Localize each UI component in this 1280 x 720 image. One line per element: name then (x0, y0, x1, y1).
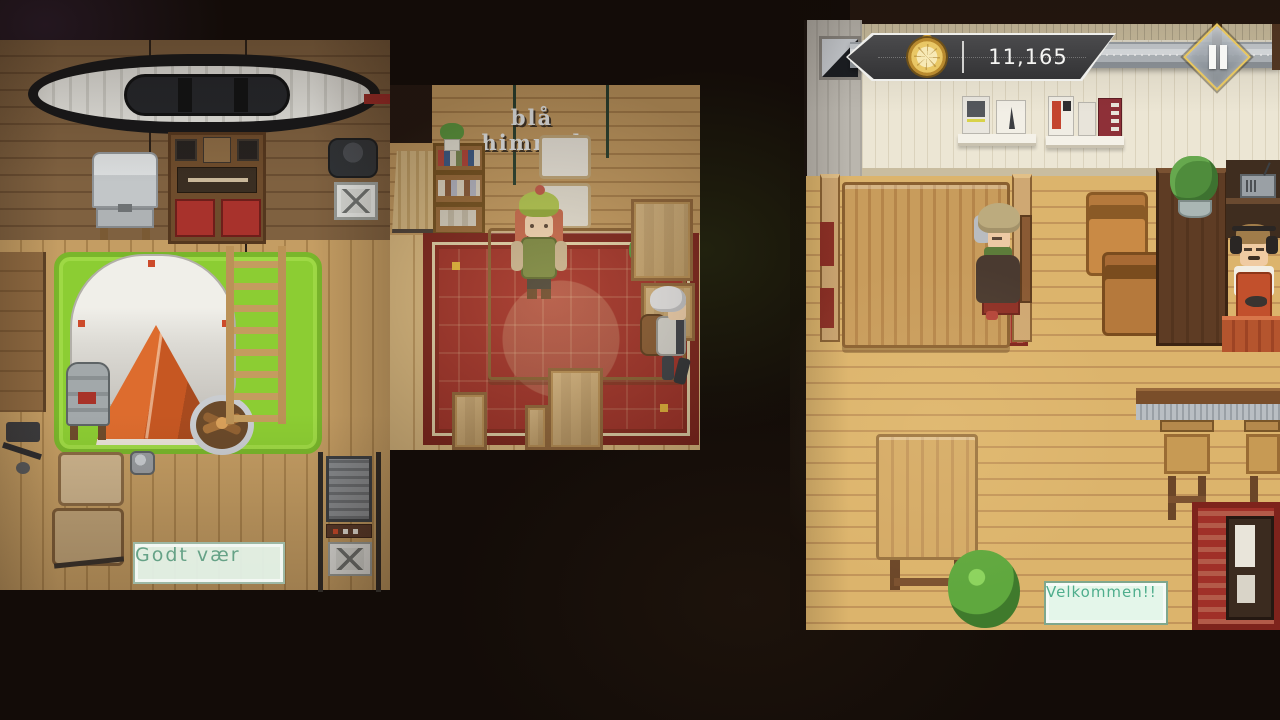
tank-leg (70, 426, 78, 440)
grill-controls (326, 524, 372, 538)
camp-kettle (130, 451, 155, 475)
partition-plant-pot (1178, 200, 1212, 218)
den-dark-corner (390, 85, 432, 143)
carpet-dot (452, 262, 460, 270)
den-room: blå himmel (390, 85, 700, 450)
radio-speaker (1246, 180, 1258, 192)
poster-art (1052, 101, 1061, 129)
stool-back (1160, 420, 1214, 432)
girl-arm (511, 241, 523, 271)
player-character (640, 288, 695, 398)
water-tank (66, 362, 110, 440)
menu-papers (1237, 575, 1255, 603)
magazine-art (1007, 107, 1017, 129)
wall-shelf (1046, 96, 1124, 148)
chair-back (1020, 215, 1032, 303)
picture-frame (1145, 136, 1167, 166)
grill-rack (326, 456, 372, 522)
wood-chair (1102, 252, 1164, 336)
counter-shelf (1226, 198, 1280, 204)
grandma-eye (992, 237, 1002, 240)
cart-post (318, 452, 323, 592)
wooden-crate (640, 405, 690, 450)
barista-mustache (1248, 256, 1260, 260)
watch-face (908, 38, 946, 76)
welcome-speech-text: Velkommen!! (1046, 583, 1157, 601)
knob (343, 529, 348, 534)
camp-chair (58, 452, 124, 506)
bush (948, 550, 1020, 628)
barista-brow (1256, 248, 1264, 251)
girl-boot (527, 289, 537, 299)
camp-chairs (52, 452, 130, 572)
pause-button[interactable] (1186, 26, 1248, 88)
bar-counter-metal (1136, 404, 1280, 420)
cabin-building (0, 40, 390, 590)
radio-unit (203, 137, 231, 163)
picture-frame (893, 131, 919, 167)
jacket-panel (676, 320, 684, 354)
side-rug (1192, 502, 1280, 630)
bar-counter-edge (1136, 388, 1280, 404)
menu-papers (1235, 525, 1255, 567)
grandma-slipper (986, 311, 998, 320)
girl-face (525, 215, 553, 237)
hanging-lantern (262, 135, 288, 175)
hanging-lantern (236, 328, 264, 364)
money-value: 11,165 (972, 35, 1084, 79)
banner-panel: 11,165 (848, 35, 1114, 79)
headphones-icon (1266, 236, 1278, 254)
speaker (237, 139, 259, 161)
shelf-board (1046, 136, 1124, 148)
cafe-building (790, 0, 1280, 630)
watch-spokes (914, 44, 940, 70)
bookshelf (433, 143, 485, 235)
weather-bubble-text: Godt vær (135, 544, 241, 566)
cafe-roof-edge (850, 0, 1280, 26)
radio (1240, 174, 1276, 198)
player-jacket (656, 316, 686, 356)
stove-burner (336, 548, 364, 570)
wooden-crate (488, 402, 525, 450)
shelf-board (436, 202, 482, 207)
wooden-crate (548, 368, 603, 450)
canoe-seat (178, 78, 192, 112)
poster (1078, 102, 1096, 136)
girl-eye (530, 224, 534, 228)
headphone-band (1232, 226, 1276, 231)
magazine (996, 100, 1026, 134)
pocket-watch-icon (908, 38, 946, 76)
kettle (16, 462, 30, 474)
girl-arm (555, 241, 567, 271)
canoe-cockpit (124, 74, 290, 116)
amp-label (188, 178, 248, 182)
grill-cart (318, 452, 382, 598)
plant-pot (444, 139, 460, 151)
tent-peg-dot (78, 320, 85, 327)
knob (333, 529, 338, 534)
player-leg (673, 357, 691, 385)
cooler-lid (92, 152, 158, 208)
player-leg (662, 356, 674, 380)
poster (1048, 96, 1074, 136)
speaker (175, 139, 197, 161)
pause-bar (1220, 45, 1227, 69)
poster-art (1063, 101, 1071, 111)
cooler-box (92, 152, 158, 240)
pendant-lamp-silver (894, 396, 968, 476)
shelf-board (436, 170, 482, 175)
headphones-icon (1230, 236, 1242, 254)
apron-fish-motif (1245, 296, 1267, 307)
game-screen: blå himmel (0, 0, 1280, 720)
canoe-seat (234, 78, 248, 112)
chair-cushion (539, 135, 591, 179)
picture-frame (1194, 122, 1222, 154)
wooden-crate (452, 392, 487, 450)
lamp-hub (920, 388, 938, 408)
banner-divider (962, 41, 964, 73)
seat-cushion (820, 288, 834, 328)
counter-front (1222, 316, 1280, 352)
tent-ridge (145, 325, 164, 438)
tent-peg-dot (148, 260, 155, 267)
picture-frame (1133, 104, 1153, 130)
time-money-banner[interactable]: 11,165 (846, 33, 1116, 81)
red-radio (221, 199, 261, 237)
hanging-lantern (288, 135, 312, 175)
tank-label (78, 392, 96, 404)
camp-tools (2, 418, 44, 478)
pause-bar (1209, 45, 1216, 69)
hanging-lantern (592, 158, 620, 200)
grandma-hood (978, 203, 1020, 233)
radio-antenna (1263, 162, 1271, 176)
stove-box (328, 542, 372, 576)
barista-brow (1244, 248, 1252, 251)
books-row (438, 180, 480, 196)
books-row (440, 210, 476, 226)
girl-eye (544, 224, 548, 228)
vending-rows (1111, 103, 1119, 133)
wooden-crate (525, 405, 548, 450)
wooden-crate (608, 405, 636, 450)
seat-cushion (820, 222, 834, 266)
tank-leg (98, 426, 106, 440)
npc-girl (513, 193, 565, 301)
wooden-crate (387, 408, 447, 450)
lantern-cord (606, 85, 609, 158)
wooden-crate (637, 127, 689, 197)
partition-plant-leaves (1170, 156, 1218, 204)
cooler-leg (100, 228, 108, 240)
workbench (0, 252, 46, 412)
magazine-line (967, 119, 985, 122)
wall-shelf (958, 96, 1036, 148)
pendant-lamp (1248, 52, 1280, 132)
canoe-red-tip (364, 94, 390, 104)
shelf-board (958, 134, 1036, 146)
tool-handle (2, 442, 42, 460)
vending-art (1098, 98, 1122, 138)
audio-shelf (168, 132, 266, 244)
beanie-pompom (535, 185, 545, 195)
canoe (28, 54, 380, 134)
girl-boot (541, 289, 551, 299)
weather-bubble: Godt vær (133, 542, 285, 584)
area-title-text: blå himmel (462, 105, 602, 133)
grandma-coat (976, 255, 1020, 303)
welcome-speech-bubble: Velkommen!! (1044, 581, 1168, 625)
dining-chair (846, 486, 894, 578)
storage-crate (20, 126, 62, 190)
side-table (1226, 516, 1274, 620)
toolbox (6, 422, 40, 442)
folded-textile (1257, 567, 1271, 605)
red-radio (175, 199, 215, 237)
girl-coat (521, 237, 557, 279)
cart-post (376, 452, 381, 592)
npc-grandma (972, 205, 1032, 325)
camp-stove (334, 182, 378, 220)
cooler-latch (118, 204, 132, 212)
potted-plant (437, 123, 467, 153)
player-hair (650, 286, 686, 312)
girl-skirt (527, 279, 551, 289)
pendant-lamp-silver (1254, 424, 1280, 486)
cooking-pot (328, 138, 378, 178)
magazine (962, 96, 990, 134)
amplifier (177, 167, 257, 193)
pause-icon (1186, 26, 1248, 88)
cooler-leg (142, 228, 150, 240)
stool-seat (1164, 434, 1210, 474)
stove-burner (341, 189, 371, 213)
wooden-crate (631, 199, 693, 281)
knob (353, 529, 358, 534)
magazine-art (967, 101, 985, 117)
